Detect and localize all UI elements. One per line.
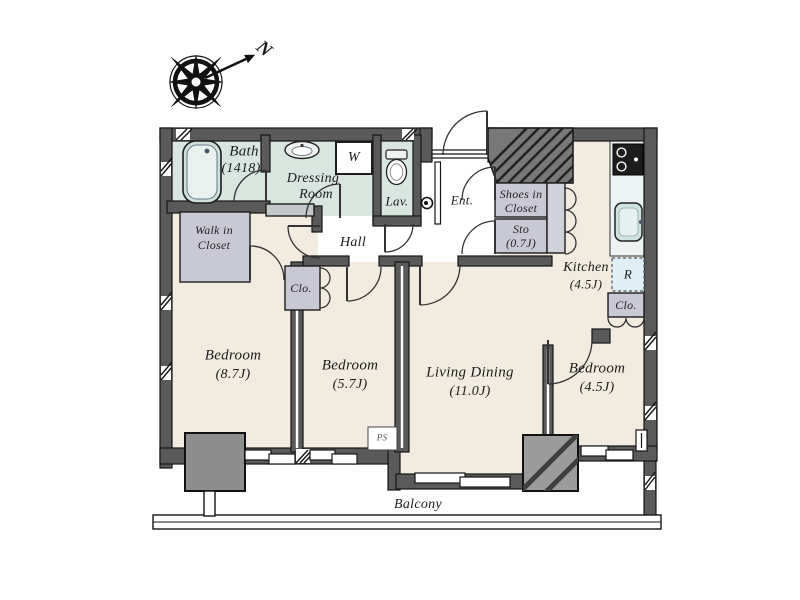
kitchen-closet-box — [547, 183, 565, 253]
living-dining-label: Living Dining — [426, 366, 514, 381]
kitchen-size-label: (4.5J) — [570, 278, 602, 291]
hall-label: Hall — [340, 236, 366, 250]
slit-window — [636, 430, 647, 451]
dressing-room-label-1: Dressing — [287, 172, 339, 186]
toilet-icon — [386, 150, 407, 185]
compass-icon — [169, 55, 255, 109]
bedroom2-size-label: (5.7J) — [333, 378, 368, 392]
pillar — [185, 433, 245, 491]
walk-in-closet-label-2: Closet — [198, 239, 230, 251]
entrance-threshold — [432, 150, 488, 158]
balcony-label: Balcony — [394, 498, 442, 512]
bath-label: Bath — [229, 145, 259, 160]
storage-label-2: (0.7J) — [506, 237, 536, 249]
bedroom3-label: Bedroom — [569, 362, 626, 377]
shoes-closet-label-1: Shoes in — [500, 188, 543, 200]
living-dining-size-label: (11.0J) — [449, 385, 490, 399]
bathtub-icon — [183, 141, 221, 203]
utility-icon — [422, 198, 433, 209]
entrance-recess — [432, 128, 488, 152]
shoes-closet-label-2: Closet — [505, 202, 537, 214]
closet-bedroom2-label: Clo. — [290, 282, 312, 294]
washer-label: W — [348, 151, 360, 165]
bedroom2-label: Bedroom — [322, 359, 379, 374]
entry-step — [435, 162, 441, 224]
floor-plan: N Bath (1418) Dressing Room W Lav. Ent. … — [0, 0, 800, 600]
bedroom1-label: Bedroom — [205, 349, 262, 364]
bedroom3-size-label: (4.5J) — [580, 381, 615, 395]
closet-bedroom3-label: Clo. — [615, 299, 637, 311]
bath-size-label: (1418) — [221, 162, 260, 176]
balcony-divider — [204, 491, 215, 516]
storage-label-1: Sto — [513, 223, 529, 235]
sink-icon — [285, 142, 319, 159]
bedroom1-size-label: (8.7J) — [216, 368, 251, 382]
lavatory-label: Lav. — [386, 195, 409, 208]
pipe-space-label: PS — [377, 434, 388, 443]
refrigerator-label: R — [624, 268, 632, 281]
entrance-label: Ent. — [451, 194, 474, 207]
stove-icon — [613, 144, 643, 175]
kitchen-sink-icon — [615, 203, 643, 241]
walk-in-closet-label-1: Walk in — [195, 224, 233, 236]
kitchen-label: Kitchen — [563, 261, 609, 275]
dressing-room-label-2: Room — [299, 188, 333, 202]
